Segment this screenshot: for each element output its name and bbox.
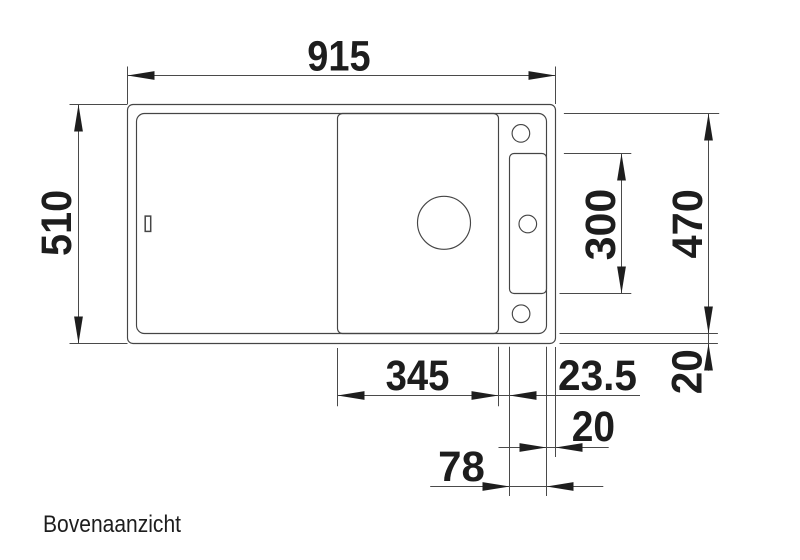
- svg-text:Bovenaanzicht: Bovenaanzicht: [43, 511, 181, 538]
- svg-text:915: 915: [307, 32, 370, 80]
- svg-text:23.5: 23.5: [558, 352, 637, 400]
- svg-text:510: 510: [33, 190, 81, 256]
- svg-text:20: 20: [572, 403, 615, 451]
- svg-text:300: 300: [577, 189, 625, 261]
- svg-text:20: 20: [664, 349, 712, 394]
- svg-text:78: 78: [438, 443, 485, 491]
- svg-text:470: 470: [664, 189, 712, 258]
- svg-text:345: 345: [386, 352, 450, 400]
